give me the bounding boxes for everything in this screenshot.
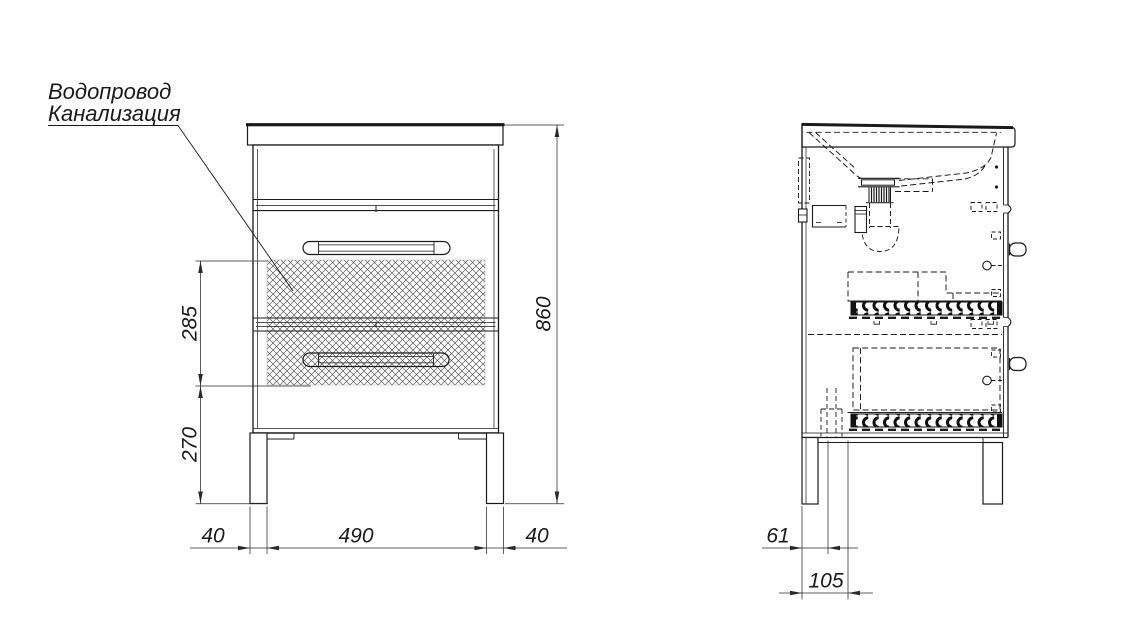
side-back-fittings — [799, 158, 847, 227]
side-basin-screws — [995, 165, 998, 188]
front-countertop — [246, 125, 505, 145]
front-legs — [250, 433, 504, 504]
dim-860: 860 — [533, 296, 556, 331]
front-view — [246, 125, 505, 504]
side-lower-drawer-hidden — [853, 348, 1000, 410]
side-countertop — [802, 124, 1016, 147]
side-siphon-trap — [855, 178, 900, 251]
side-lower-slide-rail — [848, 413, 1003, 430]
callout-sewerage-label: Канализация — [48, 101, 181, 126]
side-drawer-knobs — [1010, 243, 1027, 371]
side-drawer-front-gaps — [1003, 205, 1011, 327]
dim-270: 270 — [179, 427, 202, 463]
side-view — [799, 124, 1027, 504]
dim-40-right: 40 — [525, 525, 549, 548]
dim-285: 285 — [179, 306, 202, 342]
dim-40-left: 40 — [201, 525, 225, 548]
dim-490: 490 — [338, 525, 373, 548]
vanity-cabinet-drawing: Водопровод Канализация 285 270 860 — [0, 0, 1122, 618]
side-legs — [802, 438, 1003, 505]
side-upper-drawer-hidden — [848, 272, 1000, 301]
side-upper-slide-rail — [848, 301, 1003, 324]
side-pipes-hidden — [821, 388, 842, 437]
dim-61: 61 — [766, 525, 789, 548]
side-carcass — [802, 124, 1008, 443]
technical-drawing-page: Водопровод Канализация 285 270 860 — [0, 0, 1122, 618]
dim-105: 105 — [808, 570, 843, 593]
